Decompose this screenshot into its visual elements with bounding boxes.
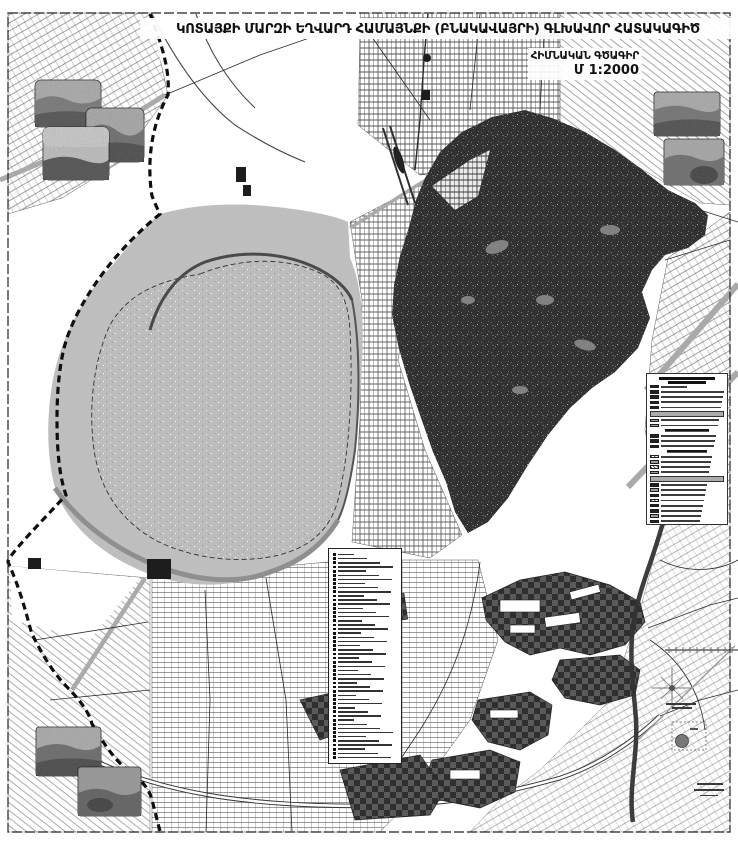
legend-item-number <box>333 702 336 705</box>
legend-item <box>333 582 398 585</box>
legend-swatch <box>650 520 659 523</box>
legend-item-label-bar <box>338 579 392 581</box>
legend-item <box>333 669 398 672</box>
legend-label-bar <box>661 489 706 491</box>
legend-item <box>333 644 398 647</box>
legend-right-title-bar2 <box>668 381 706 384</box>
legend-item-number <box>333 603 336 606</box>
legend-label-bar <box>661 396 723 398</box>
legend-item-label-bar <box>338 583 365 585</box>
legend-swatch <box>650 465 659 468</box>
legend-item-label-bar <box>338 724 367 726</box>
legend-label-bar <box>661 407 721 409</box>
legend-swatch <box>650 514 659 517</box>
legend-item-label-bar <box>338 558 367 560</box>
legend-row <box>650 406 724 410</box>
legend-row <box>650 419 724 423</box>
legend-item-label-bar <box>338 608 363 610</box>
legend-item <box>333 586 398 589</box>
legend-item-number <box>333 611 336 614</box>
title-band: ԿՈՏԱՅՔԻ ՄԱՐԶԻ ԵՂՎԱՐԴ ՀԱՄԱՅՆՔԻ (ԲՆԱԿԱՎԱՅՐ… <box>140 18 736 39</box>
legend-item-label-bar <box>338 575 379 577</box>
legend-item-number <box>333 739 336 742</box>
legend-item-number <box>333 748 336 751</box>
legend-item <box>333 739 398 742</box>
legend-item-number <box>333 657 336 660</box>
photo-inset-tl-3 <box>43 127 109 180</box>
legend-item-number <box>333 710 336 713</box>
legend-item <box>333 570 398 573</box>
legend-item-number <box>333 640 336 643</box>
legend-label-bar <box>661 520 700 522</box>
legend-swatch <box>650 419 659 422</box>
legend-item-number <box>333 607 336 610</box>
legend-row <box>650 509 724 513</box>
legend-swatch <box>650 445 659 448</box>
legend-item-label-bar <box>338 736 366 738</box>
legend-item-number <box>333 586 336 589</box>
legend-item-label-bar <box>338 620 362 622</box>
legend-item <box>333 623 398 626</box>
legend-row <box>650 395 724 399</box>
legend-item-label-bar <box>338 748 365 750</box>
legend-item <box>333 694 398 697</box>
legend-item-label-bar <box>338 649 373 651</box>
legend-label-bar <box>661 440 715 442</box>
legend-swatch <box>650 483 659 486</box>
legend-item-number <box>333 574 336 577</box>
legend-item <box>333 677 398 680</box>
legend-item-label-bar <box>338 595 364 597</box>
legend-item-label-bar <box>338 707 355 709</box>
legend-swatch <box>650 439 659 442</box>
legend-item <box>333 756 398 759</box>
legend-label-bar <box>661 466 710 468</box>
legend-item-number <box>333 628 336 631</box>
legend-item-label-bar <box>338 666 385 668</box>
legend-swatch <box>650 504 659 507</box>
legend-label-bar <box>661 515 701 517</box>
legend-item-label-bar <box>338 632 361 634</box>
legend-item <box>333 702 398 705</box>
legend-label-bar <box>661 445 714 447</box>
legend-item-number <box>333 719 336 722</box>
legend-item-number <box>333 682 336 685</box>
stamp-text-bar2 <box>694 789 724 791</box>
legend-item-number <box>333 624 336 627</box>
legend-item-label-bar <box>338 653 386 655</box>
legend-item-label-bar <box>338 645 360 647</box>
legend-item-number <box>333 644 336 647</box>
legend-item-number <box>333 715 336 718</box>
legend-item-number <box>333 619 336 622</box>
legend-item <box>333 719 398 722</box>
legend-item <box>333 710 398 713</box>
legend-row <box>650 499 724 503</box>
legend-item-number <box>333 557 336 560</box>
legend-item-label-bar <box>338 695 356 697</box>
legend-item-label-bar <box>338 719 354 721</box>
legend-item <box>333 652 398 655</box>
legend-item <box>333 735 398 738</box>
legend-label-bar <box>661 500 704 502</box>
legend-item <box>333 578 398 581</box>
legend-right-box <box>646 373 728 525</box>
legend-item-label-bar <box>338 690 383 692</box>
legend-item-number <box>333 669 336 672</box>
legend-row <box>650 429 724 433</box>
legend-row <box>650 460 724 464</box>
page-title: ԿՈՏԱՅՔԻ ՄԱՐԶԻ ԵՂՎԱՐԴ ՀԱՄԱՅՆՔԻ (ԲՆԱԿԱՎԱՅՐ… <box>149 21 727 37</box>
legend-item-number <box>333 723 336 726</box>
compass-caption-bar2 <box>672 707 692 709</box>
legend-item-label-bar <box>338 753 378 755</box>
legend-item-number <box>333 690 336 693</box>
legend-item <box>333 603 398 606</box>
legend-item <box>333 681 398 684</box>
legend-label-bar <box>661 401 722 403</box>
master-plan-sheet: ԿՈՏԱՅՔԻ ՄԱՐԶԻ ԵՂՎԱՐԴ ՀԱՄԱՅՆՔԻ (ԲՆԱԿԱՎԱՅՐ… <box>0 0 738 850</box>
legend-item-number <box>333 570 336 573</box>
legend-item-label-bar <box>338 628 388 630</box>
legend-row <box>650 520 724 524</box>
legend-row <box>650 439 724 443</box>
legend-item-label-bar <box>338 686 370 688</box>
legend-swatch <box>650 401 659 404</box>
legend-item <box>333 574 398 577</box>
legend-item <box>333 657 398 660</box>
legend-item-label-bar <box>338 732 393 734</box>
legend-item-label-bar <box>338 641 387 643</box>
legend-item-number <box>333 590 336 593</box>
legend-item-number <box>333 632 336 635</box>
legend-swatch <box>650 434 659 437</box>
legend-row <box>650 494 724 498</box>
legend-item <box>333 599 398 602</box>
legend-label-bar <box>661 386 687 388</box>
legend-item-label-bar <box>338 670 358 672</box>
legend-item <box>333 690 398 693</box>
legend-label-bar <box>661 456 712 458</box>
legend-item-number <box>333 673 336 676</box>
stamp-underline <box>700 795 718 796</box>
legend-item <box>333 557 398 560</box>
legend-item-label-bar <box>338 599 377 601</box>
legend-item-label-bar <box>338 603 390 605</box>
legend-row <box>650 401 724 405</box>
legend-item <box>333 594 398 597</box>
legend-label-bar <box>661 391 724 393</box>
legend-item-number <box>333 665 336 668</box>
reservoir-region <box>92 261 351 559</box>
legend-item-number <box>333 615 336 618</box>
legend-swatch <box>650 460 659 463</box>
legend-item <box>333 561 398 564</box>
legend-item-label-bar <box>338 657 359 659</box>
legend-swatch <box>650 471 659 474</box>
legend-item-label-bar <box>338 757 391 759</box>
legend-item-number <box>333 653 336 656</box>
legend-item-number <box>333 686 336 689</box>
legend-item-number <box>333 599 336 602</box>
legend-item-label-bar <box>338 587 378 589</box>
legend-item <box>333 714 398 717</box>
legend-item <box>333 648 398 651</box>
legend-item-label-bar <box>338 744 392 746</box>
legend-item <box>333 661 398 664</box>
legend-row <box>650 455 724 459</box>
legend-item-number <box>333 756 336 759</box>
legend-row <box>650 434 724 438</box>
legend-item <box>333 636 398 639</box>
legend-item-number <box>333 553 336 556</box>
legend-item-number <box>333 731 336 734</box>
legend-item <box>333 698 398 701</box>
legend-item-label-bar <box>338 637 374 639</box>
legend-item-number <box>333 752 336 755</box>
legend-item <box>333 632 398 635</box>
legend-label-bar <box>661 484 707 486</box>
legend-label-bar <box>661 471 709 473</box>
legend-item-label-bar <box>338 591 391 593</box>
legend-item <box>333 611 398 614</box>
legend-swatch <box>650 390 659 393</box>
legend-item-label-bar <box>338 678 384 680</box>
legend-item-label-bar <box>338 740 379 742</box>
legend-item-label-bar <box>338 566 393 568</box>
legend-item-label-bar <box>338 616 389 618</box>
legend-item <box>333 553 398 556</box>
legend-item <box>333 590 398 593</box>
legend-item-number <box>333 648 336 651</box>
legend-swatch <box>650 395 659 398</box>
legend-item <box>333 628 398 631</box>
legend-row <box>650 411 724 417</box>
legend-center-rows <box>333 553 398 759</box>
legend-item-number <box>333 578 336 581</box>
legend-item-number <box>333 706 336 709</box>
legend-item-label-bar <box>338 711 368 713</box>
legend-item-number <box>333 582 336 585</box>
legend-item <box>333 723 398 726</box>
legend-item-label-bar <box>338 562 380 564</box>
legend-item-number <box>333 744 336 747</box>
legend-item <box>333 665 398 668</box>
legend-label-bar <box>661 510 702 512</box>
legend-label-bar <box>661 435 716 437</box>
legend-item-number <box>333 561 336 564</box>
legend-item <box>333 748 398 751</box>
legend-row <box>650 504 724 508</box>
legend-row <box>650 470 724 474</box>
legend-item-number <box>333 698 336 701</box>
legend-center-box <box>328 548 402 764</box>
legend-item-number <box>333 595 336 598</box>
photo-inset-tr-2 <box>664 139 724 185</box>
legend-item-number <box>333 694 336 697</box>
legend-item-label-bar <box>338 612 376 614</box>
legend-item-label-bar <box>338 728 380 730</box>
legend-label-bar <box>661 494 705 496</box>
legend-item-label-bar <box>338 661 372 663</box>
legend-swatch <box>650 406 659 409</box>
compass-caption-bar <box>666 703 696 705</box>
legend-label-bar <box>661 505 703 507</box>
legend-right-rows <box>650 385 724 523</box>
legend-item <box>333 686 398 689</box>
legend-item <box>333 727 398 730</box>
legend-item <box>333 619 398 622</box>
legend-row <box>650 465 724 469</box>
legend-item-label-bar <box>338 674 371 676</box>
legend-item <box>333 743 398 746</box>
legend-item-number <box>333 566 336 569</box>
legend-swatch <box>650 499 659 502</box>
legend-row <box>650 385 724 389</box>
legend-swatch <box>650 494 659 497</box>
drawing-type-label: ՀԻՄՆԱԿԱՆ ԳԾԱԳԻՐ <box>531 50 639 62</box>
legend-swatch <box>650 385 659 388</box>
stamp-text-bar <box>697 783 723 785</box>
legend-item <box>333 706 398 709</box>
legend-item-label-bar <box>338 570 366 572</box>
legend-item <box>333 615 398 618</box>
legend-item-number <box>333 677 336 680</box>
legend-item-number <box>333 735 336 738</box>
legend-row <box>650 444 724 448</box>
legend-item-label-bar <box>338 715 381 717</box>
legend-row <box>650 514 724 518</box>
legend-item-number <box>333 727 336 730</box>
legend-item-label-bar <box>338 699 369 701</box>
photo-inset-bl-2 <box>78 767 141 816</box>
legend-right-title-bar <box>659 377 715 380</box>
legend-item <box>333 752 398 755</box>
legend-item-number <box>333 636 336 639</box>
legend-section-header <box>667 450 707 453</box>
legend-item-label-bar <box>338 554 354 556</box>
legend-row <box>650 476 724 482</box>
legend-row <box>650 488 724 492</box>
legend-row <box>650 390 724 394</box>
legend-label-bar <box>661 461 711 463</box>
legend-label-bar <box>661 425 718 427</box>
legend-item-label-bar <box>338 682 357 684</box>
scale-label: Մ 1:2000 <box>531 63 639 78</box>
legend-item <box>333 640 398 643</box>
legend-item-label-bar <box>338 703 382 705</box>
legend-item-label-bar <box>338 624 375 626</box>
photo-inset-tr-1 <box>654 92 720 136</box>
legend-section-header <box>665 429 709 432</box>
legend-item <box>333 673 398 676</box>
legend-label-bar <box>661 419 719 421</box>
legend-row <box>650 450 724 454</box>
legend-item <box>333 565 398 568</box>
legend-row <box>650 483 724 487</box>
legend-swatch <box>650 509 659 512</box>
legend-item <box>333 607 398 610</box>
legend-swatch <box>650 424 659 427</box>
legend-row <box>650 424 724 428</box>
legend-swatch <box>650 488 659 491</box>
legend-item <box>333 731 398 734</box>
subtitle-block: ՀԻՄՆԱԿԱՆ ԳԾԱԳԻՐ Մ 1:2000 <box>528 48 642 80</box>
legend-swatch <box>650 455 659 458</box>
legend-item-number <box>333 661 336 664</box>
